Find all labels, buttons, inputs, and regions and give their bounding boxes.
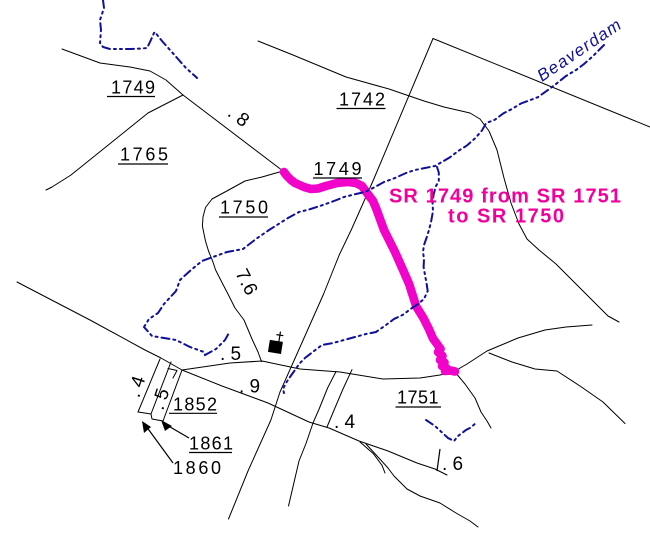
svg-text:. 4: . 4 [334,412,356,433]
svg-text:. 5: . 5 [220,344,241,365]
svg-text:to SR 1750: to SR 1750 [448,206,564,228]
svg-text:1861: 1861 [189,434,233,454]
svg-text:7.6: 7.6 [231,266,262,299]
svg-text:1749: 1749 [314,159,362,179]
svg-text:1742: 1742 [339,90,385,110]
svg-text:1750: 1750 [220,198,268,218]
svg-text:. 8: . 8 [223,102,253,131]
svg-text:1751: 1751 [397,388,439,408]
svg-text:SR 1749 from SR 1751: SR 1749 from SR 1751 [389,186,621,208]
svg-text:1860: 1860 [173,458,221,478]
svg-text:Beaverdam: Beaverdam [534,15,625,85]
svg-text:1749: 1749 [111,78,155,98]
svg-text:. 6: . 6 [442,454,463,475]
svg-text:1852: 1852 [173,395,217,415]
svg-text:. 4: . 4 [124,373,151,400]
svg-text:. 5: . 5 [148,386,175,413]
svg-text:. 9: . 9 [239,377,260,398]
svg-text:1765: 1765 [120,145,168,165]
